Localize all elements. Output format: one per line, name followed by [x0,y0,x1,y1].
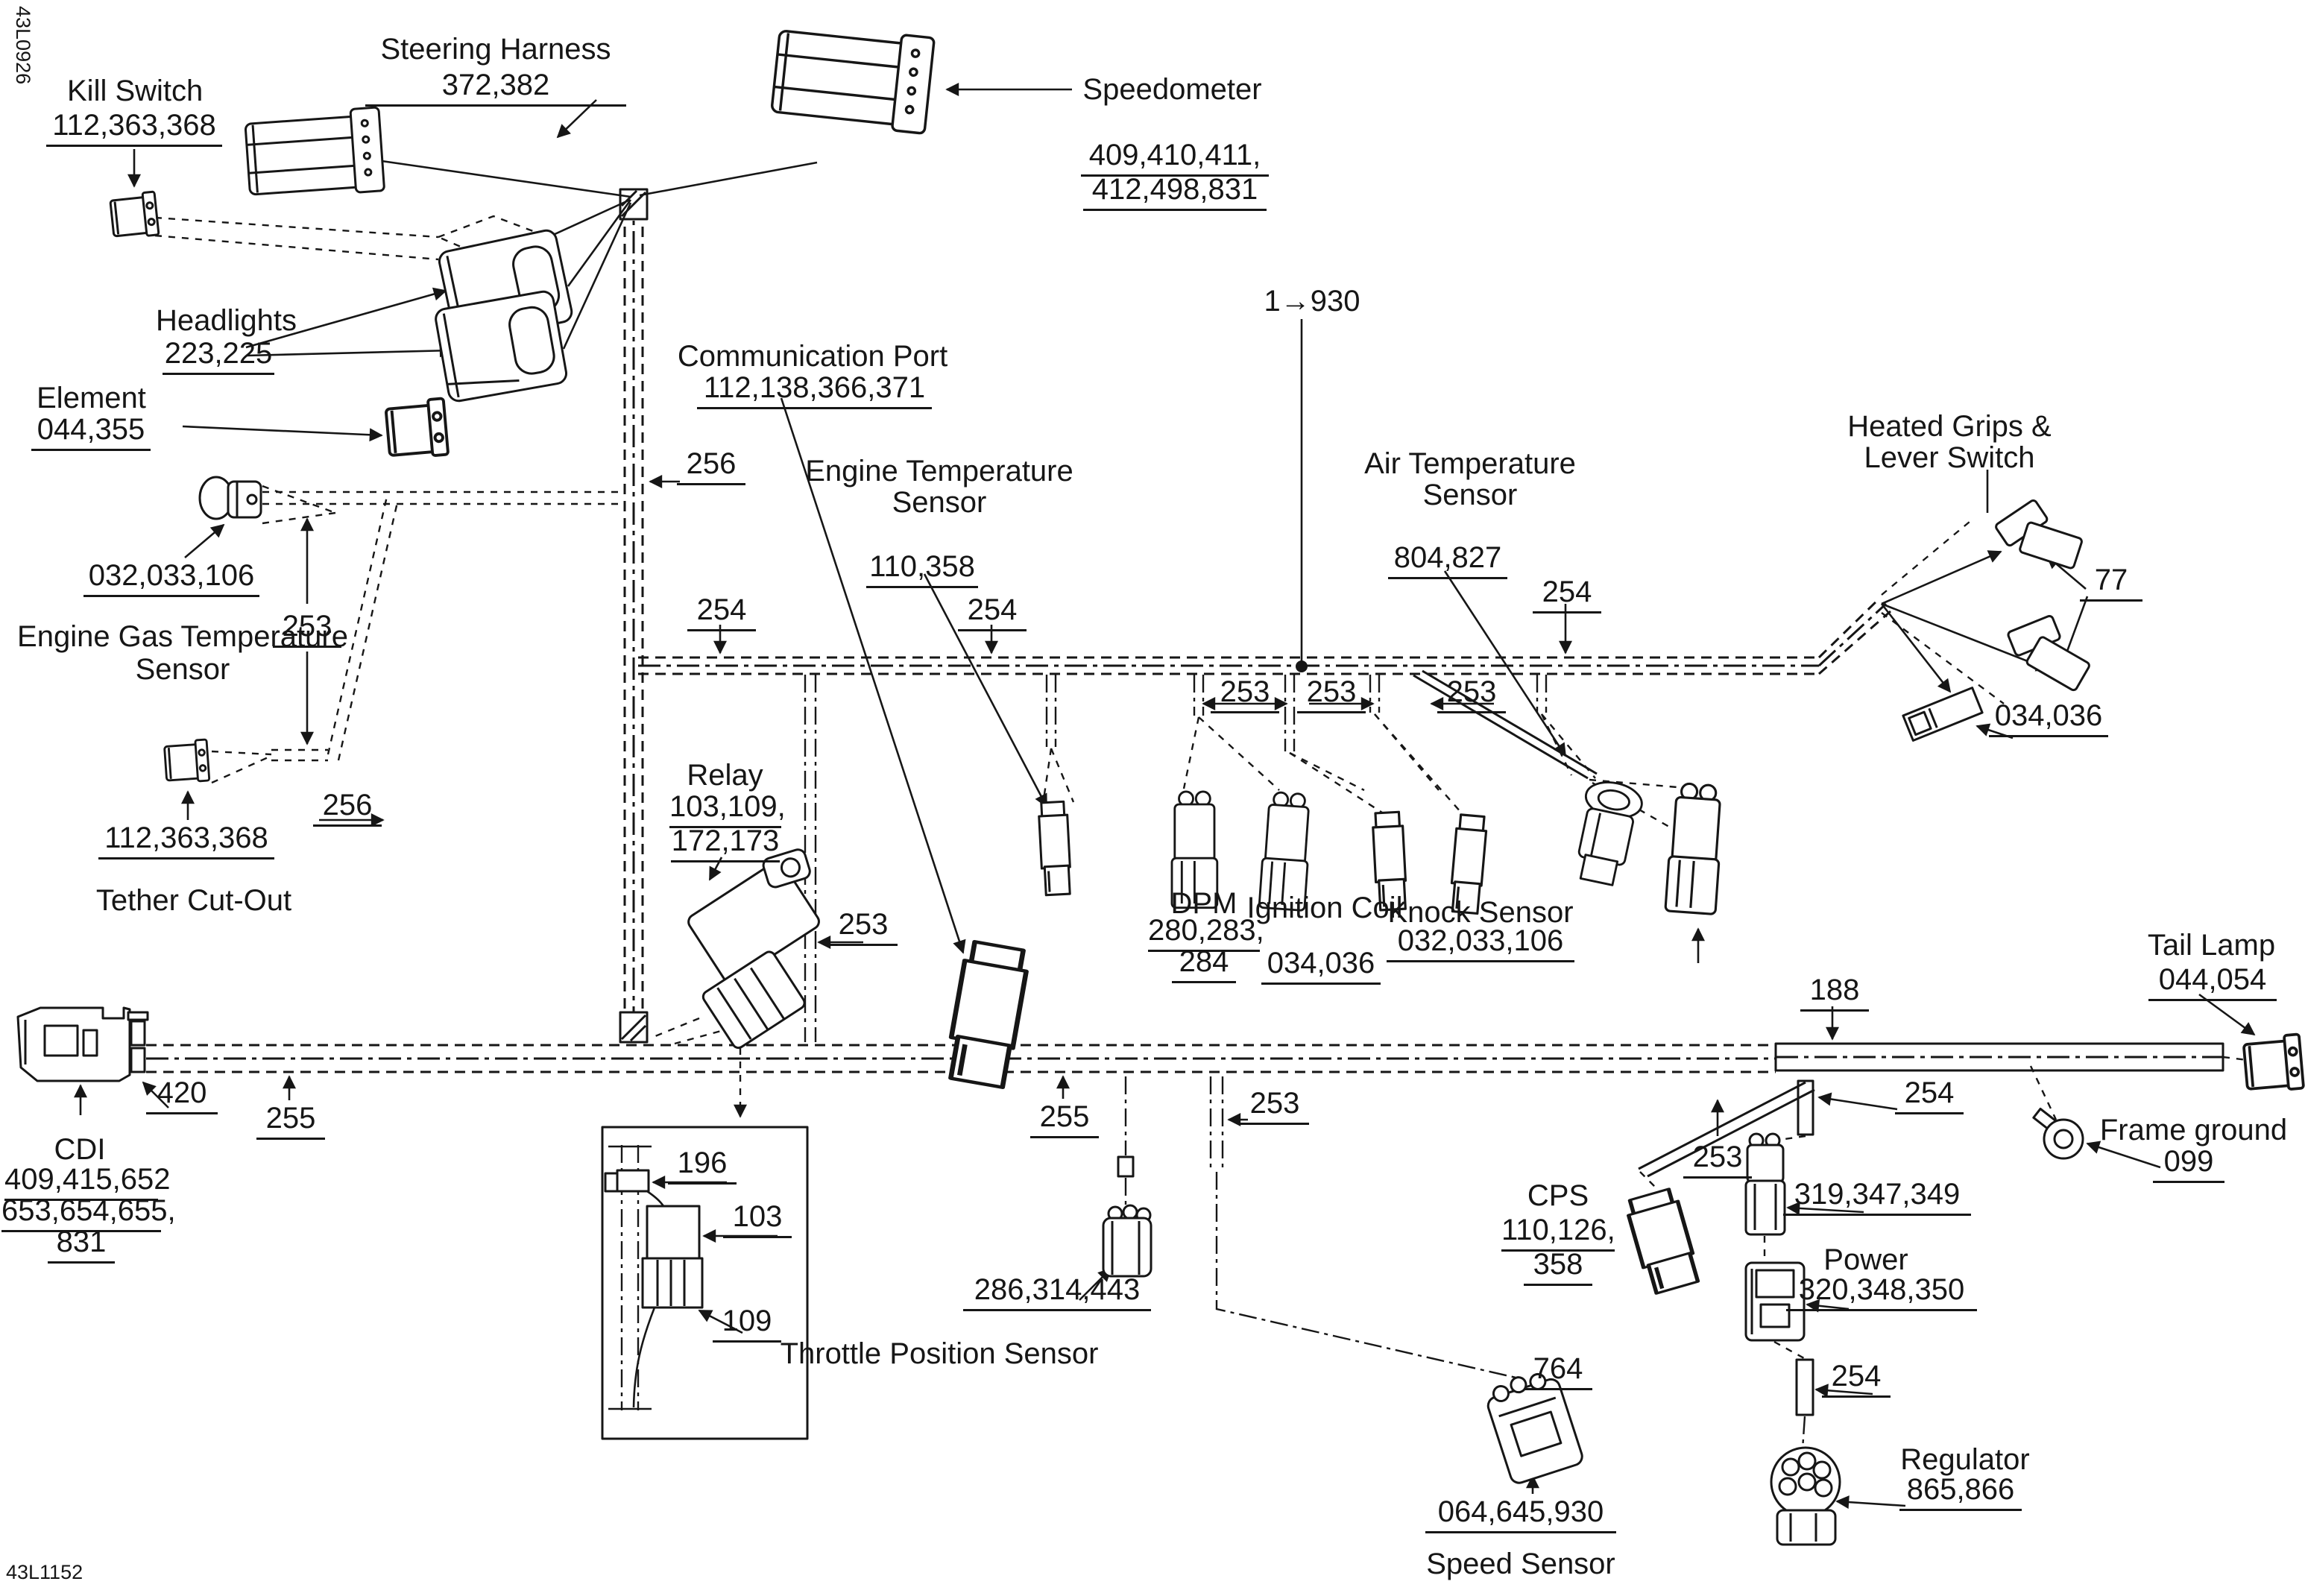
speedometer-title: Speedometer [1073,73,1271,107]
ref-1-930: 1→930 [1237,285,1387,318]
chain-254-top: 254 [1895,1076,1964,1114]
knock-parts: 032,033,106 [1387,924,1574,962]
element-parts: 044,355 [31,413,151,451]
ref-764: 764 [1524,1352,1592,1390]
frame-ground-title: Frame ground [2087,1114,2300,1147]
engine-temp-branch [1044,675,1073,802]
vertical-harness-trunk [620,189,647,1042]
tether-cutout-connector [164,739,209,783]
comm-port-connector [945,941,1030,1088]
dim-188: 188 [1800,974,1869,1012]
heated-grips-parts: 034,036 [1989,699,2108,737]
trunk-256-upper: 256 [677,447,745,485]
tail-lamp-title: Tail Lamp [2135,929,2288,962]
cps-parts-1: 110,126, [1501,1214,1615,1252]
element-connector [385,398,448,459]
air-temp-title-2: Sensor [1351,479,1589,512]
inset-196: 196 [668,1146,737,1185]
dim-254-a: 254 [687,593,756,631]
lever-switch-1 [1993,494,2086,576]
speedometer-parts-1: 409,410,411, [1081,139,1269,177]
tps-parts: 286,314,443 [963,1273,1151,1311]
air-temp-parts: 804,827 [1388,541,1507,579]
egts-title-2: Sensor [15,653,350,687]
cdi-connector [18,1008,148,1081]
kill-switch-connector [110,192,159,239]
frame-ground-ring [2034,1108,2083,1158]
chain-254-bottom: 254 [1822,1360,1891,1398]
relay-parts-1: 103,109, [669,790,781,828]
code-top-left: 43L0926 [12,6,34,118]
tail-lamp-parts: 044,054 [2148,963,2277,1001]
tps-branch [1118,1076,1133,1205]
branch-256-lower: 256 [313,789,382,827]
tail-harness-segment [1776,1044,2247,1070]
cdi-parts-3: 831 [48,1226,115,1264]
cps-parts-2: 358 [1524,1248,1592,1286]
dpm-parts-2: 284 [1172,945,1236,983]
speed-sensor-parts: 064,645,930 [1425,1495,1616,1533]
kill-switch-parts: 112,363,368 [46,109,222,147]
headlight-connector-2 [434,290,567,403]
heated-grips-wires [1882,470,2049,704]
frame-ground-parts: 099 [2153,1145,2224,1183]
ref-420: 420 [146,1076,218,1114]
tps-title: Throttle Position Sensor [753,1337,1126,1371]
measure-253: 253 [273,610,341,648]
ref-930-line [1296,319,1308,672]
power-parts: 320,348,350 [1786,1273,1977,1311]
cdi-title: CDI [39,1133,121,1167]
speedometer-wire [640,163,817,195]
engine-temp-connector [1038,801,1071,895]
dim-255-a: 255 [256,1102,325,1140]
ignition-parts: 034,036 [1261,947,1381,985]
chain-253: 253 [1683,1141,1752,1179]
cps-title: CPS [1521,1179,1595,1213]
egts-parts: 032,033,106 [83,559,259,597]
branch-253-c: 253 [1437,675,1506,713]
upper-harness-trunk [638,598,1891,674]
steering-harness-title: Steering Harness [321,33,671,66]
element-title: Element [30,382,153,415]
air-temp-connector [1568,778,1645,888]
air-temp-title-1: Air Temperature [1351,447,1589,481]
heated-grips-connector [1903,688,1982,741]
heated-grips-title-2: Lever Switch [1841,441,2058,475]
speed-branch-253: 253 [1240,1087,1309,1125]
regulator-connector [1771,1448,1840,1545]
crosslink-253: 253 [829,908,898,946]
dim-254-c: 254 [1533,575,1601,614]
regulator-parts: 865,866 [1899,1473,2022,1511]
headlights-parts: 223,225 [163,337,274,375]
steering-harness-connector [245,107,384,200]
branch-253-b: 253 [1297,675,1366,713]
egts-wire [262,486,623,523]
comm-port-title: Communication Port [671,340,954,373]
regulator-title: Regulator [1891,1443,2040,1477]
steering-harness-wire [382,161,631,197]
cps-connector [1624,1187,1700,1295]
lever-switch-2 [2002,611,2095,693]
conn-319-parts: 319,347,349 [1783,1178,1971,1216]
relay-parts-2: 172,173 [671,824,780,862]
ref-77: 77 [2080,564,2142,602]
dim-254-b: 254 [958,593,1027,631]
tether-parts: 112,363,368 [98,821,274,859]
engine-gas-temp-connector [200,477,261,519]
tail-lamp-connector [2243,1034,2304,1093]
knock-sensor-connector [1665,783,1724,914]
tps-connector [1103,1205,1151,1276]
speedometer-parts-2: 412,498,831 [1083,173,1267,211]
steering-harness-parts: 372,382 [365,69,626,107]
speedometer-connector [771,22,934,133]
branch-253-a: 253 [1211,675,1279,713]
inset-103: 103 [723,1200,792,1238]
heated-grips-title-1: Heated Grips & [1841,410,2058,444]
power-title: Power [1810,1243,1922,1277]
engine-temp-parts: 110,358 [866,550,978,588]
code-bottom-left: 43L1152 [6,1561,170,1583]
relay-title: Relay [671,759,779,792]
wiring-diagram: 43L0926Kill Switch112,363,368Steering Ha… [0,0,2305,1596]
dim-255-b: 255 [1030,1100,1099,1138]
headlights-title: Headlights [146,304,306,338]
engine-temp-title-2: Sensor [798,486,1081,520]
headlight-wires [564,200,631,349]
kill-switch-title: Kill Switch [67,75,201,108]
speed-sensor-title: Speed Sensor [1409,1548,1633,1581]
tether-title: Tether Cut-Out [82,884,306,918]
comm-port-parts: 112,138,366,371 [697,371,932,409]
engine-temp-title-1: Engine Temperature [798,455,1081,488]
